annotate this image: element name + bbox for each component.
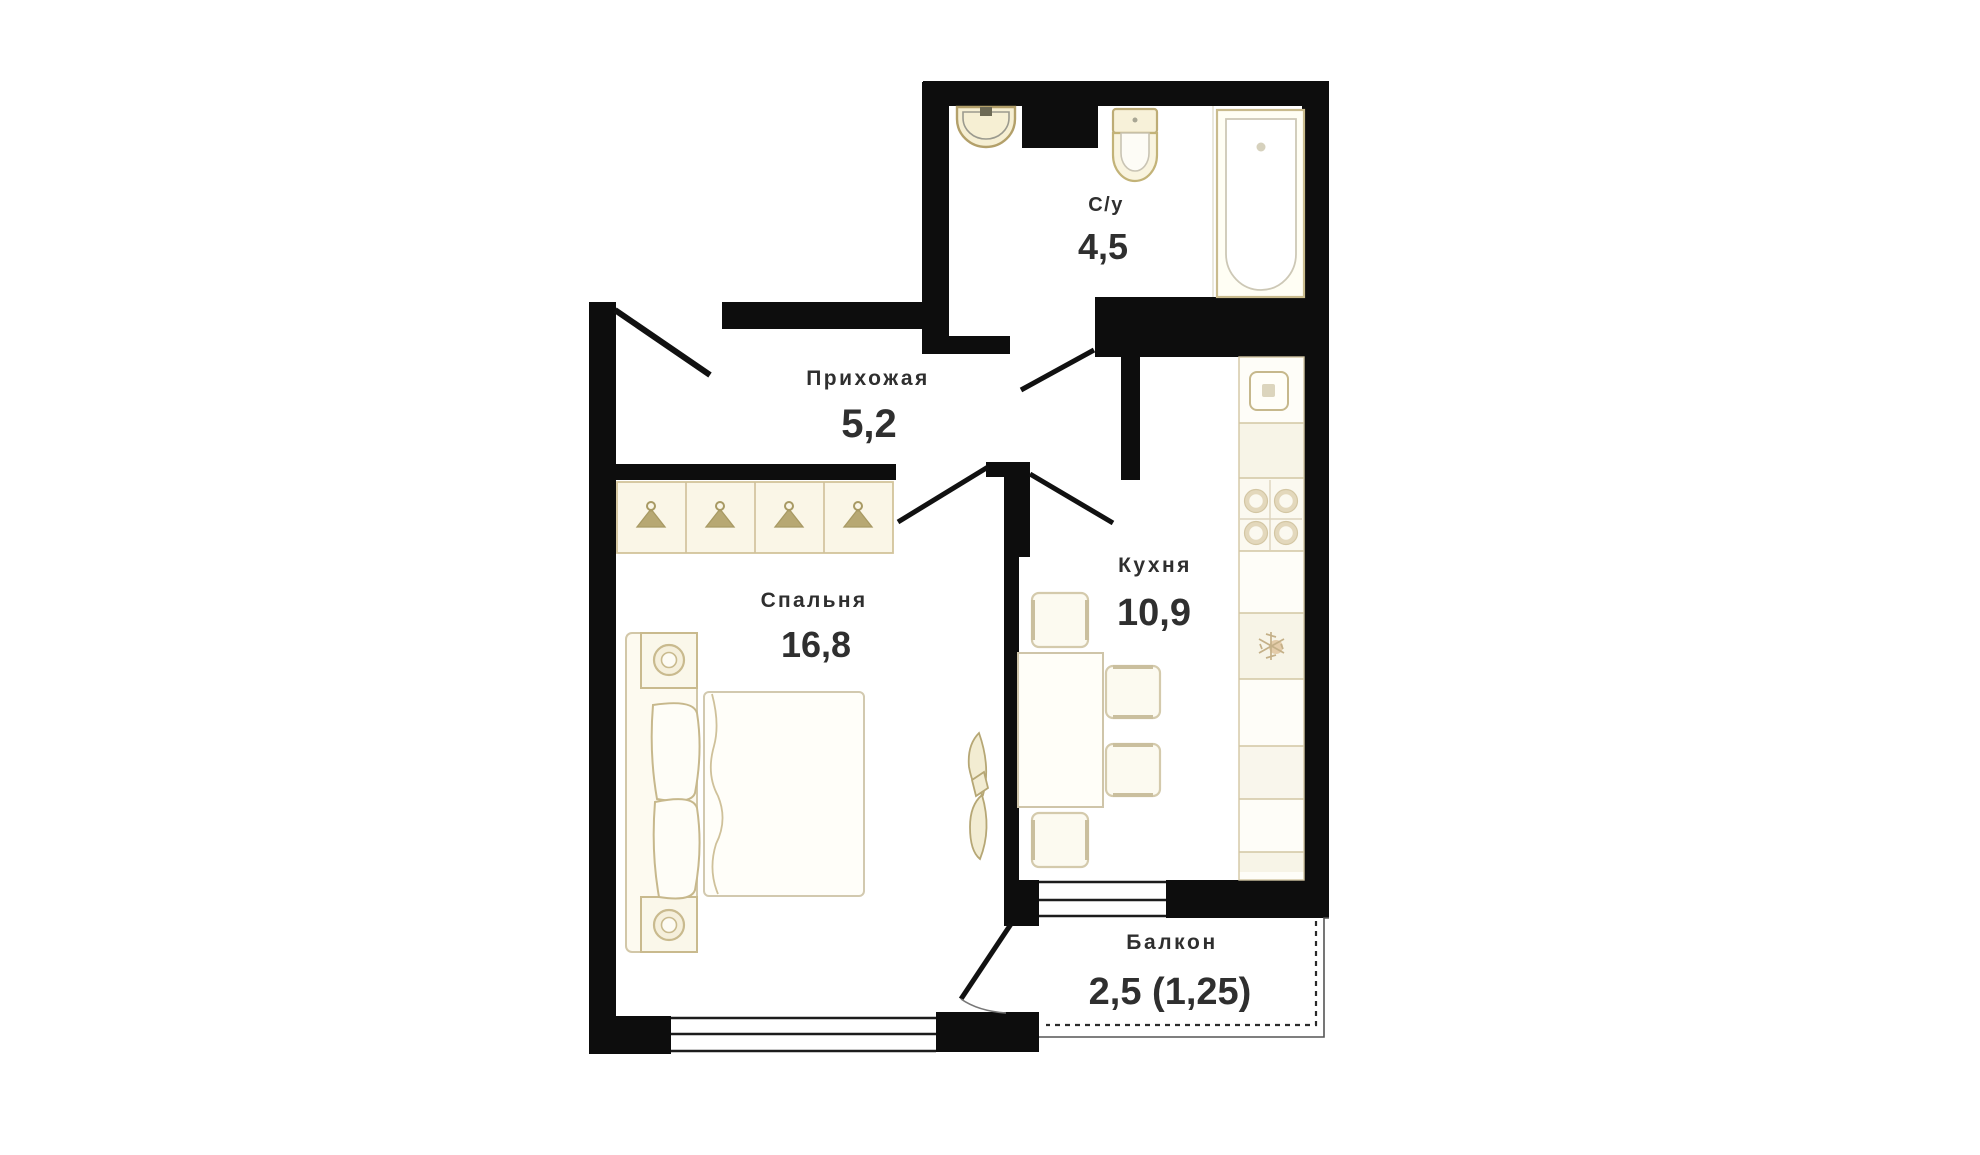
svg-text:Кухня: Кухня [1118,554,1192,577]
svg-text:Спальня: Спальня [761,589,868,612]
svg-text:5,2: 5,2 [841,402,897,446]
svg-text:С/у: С/у [1088,194,1124,216]
svg-text:Прихожая: Прихожая [806,367,930,390]
svg-text:2,5 (1,25): 2,5 (1,25) [1089,971,1252,1013]
svg-text:16,8: 16,8 [781,624,851,665]
svg-text:10,9: 10,9 [1117,592,1191,634]
svg-text:4,5: 4,5 [1078,226,1128,267]
svg-text:Балкон: Балкон [1126,931,1217,954]
